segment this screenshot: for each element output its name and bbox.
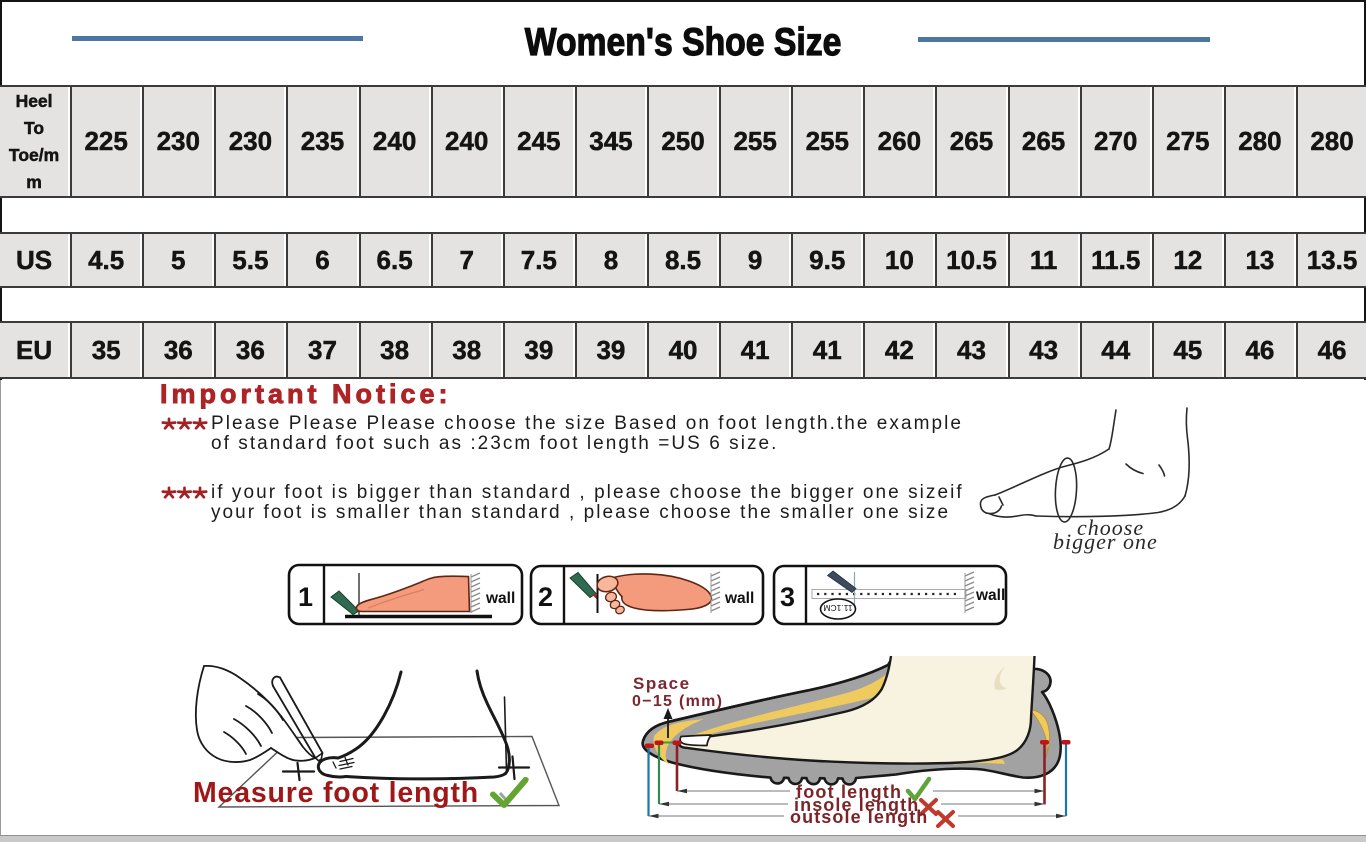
svg-text:2: 2 [538, 582, 553, 612]
svg-text:outsole length: outsole length [790, 807, 928, 827]
svg-text:3: 3 [780, 582, 795, 612]
svg-text:Space: Space [633, 674, 691, 693]
svg-text:wall: wall [724, 590, 754, 607]
svg-text:wall: wall [975, 587, 1005, 604]
svg-text:bigger one: bigger one [1053, 529, 1158, 554]
svg-text:Measure foot length: Measure foot length [193, 777, 479, 809]
svg-text:0−15 (mm): 0−15 (mm) [632, 693, 723, 710]
svg-text:1: 1 [298, 582, 313, 612]
svg-text:wall: wall [485, 590, 515, 607]
svg-text:11.1CM: 11.1CM [823, 603, 852, 613]
